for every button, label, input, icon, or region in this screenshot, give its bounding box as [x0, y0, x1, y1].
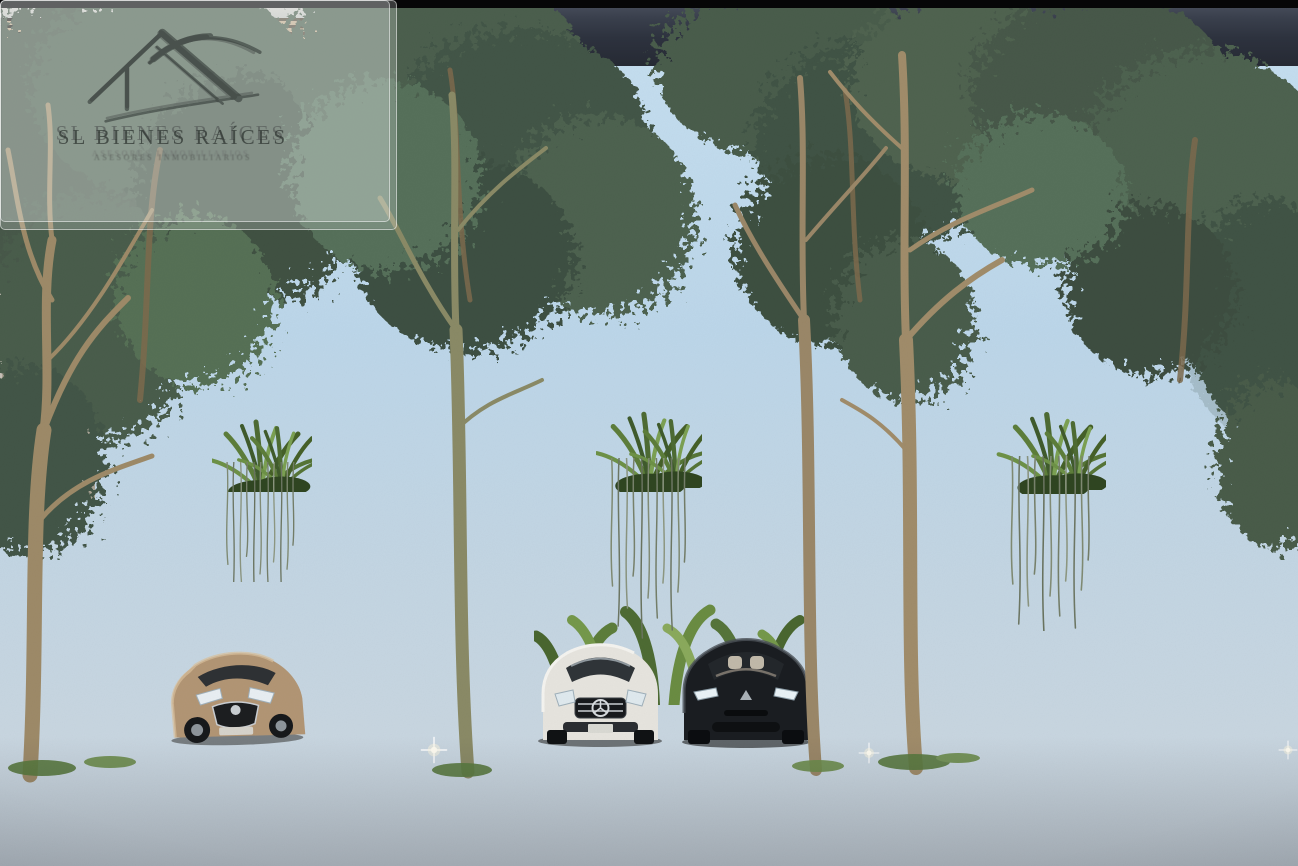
bollard-light-flare-3 [1278, 740, 1298, 760]
watermark-brand-text: SL BIENES RAÍCES [13, 125, 333, 150]
watermark-bottom-right: SL BIENES RAÍCES ASESORES INMOBILIARIOS [0, 0, 397, 230]
grass-tufts [8, 753, 980, 777]
watermark-tagline-text: ASESORES INMOBILIARIOS [13, 153, 333, 162]
street-tree-midright [735, 78, 886, 770]
street-tree-middle [380, 95, 546, 772]
bollard-light-flare-2 [858, 742, 880, 764]
render-scene: SL BIENES RAÍCES ASESORES INMOBILIARIOS … [0, 0, 1298, 866]
street-tree-right [830, 55, 1032, 768]
watermark-logo-icon [73, 15, 273, 139]
bollard-light-flare-1 [420, 736, 448, 764]
